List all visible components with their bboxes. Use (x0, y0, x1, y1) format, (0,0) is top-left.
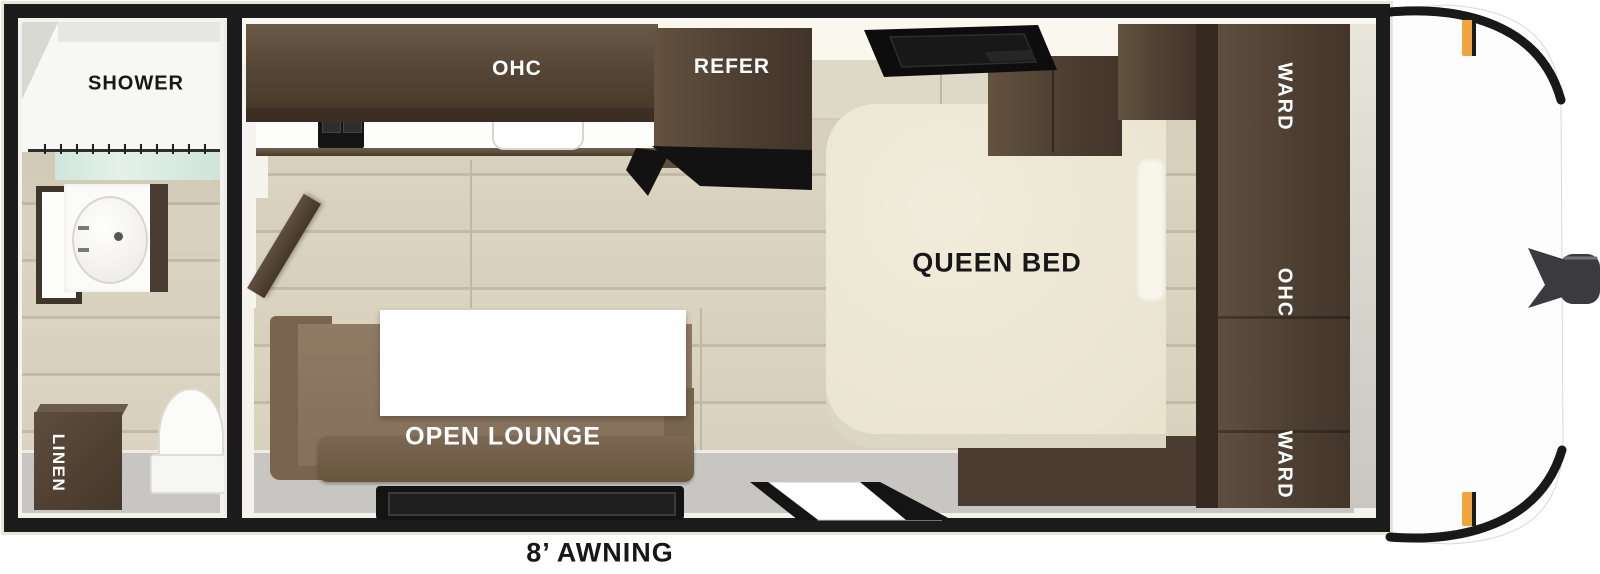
entry-door (750, 482, 952, 520)
awning-label: 8’ AWNING (526, 538, 674, 569)
floorplan: SHOWER LINEN OHC REFER OPEN LOUNG (0, 0, 1600, 574)
roof-vent-icon (864, 25, 1057, 77)
overlay-shapes (0, 0, 1600, 574)
front-cap (1390, 5, 1600, 544)
refer-base (626, 146, 812, 196)
